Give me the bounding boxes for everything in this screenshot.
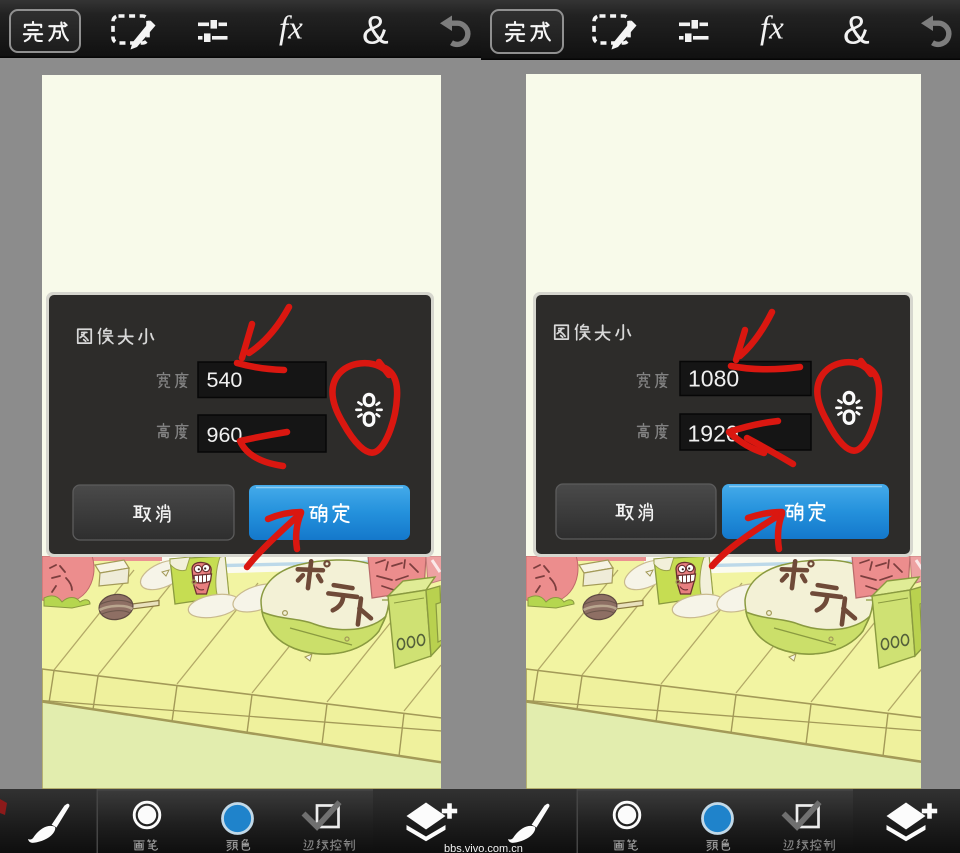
svg-text:960: 960	[207, 423, 243, 447]
svg-text:fx: fx	[760, 11, 784, 47]
svg-text:540: 540	[207, 368, 243, 392]
svg-text:fx: fx	[279, 11, 303, 47]
svg-text:&: &	[362, 9, 389, 53]
svg-text:&: &	[843, 9, 870, 53]
svg-text:bbs.vivo.com.cn: bbs.vivo.com.cn	[444, 843, 523, 853]
